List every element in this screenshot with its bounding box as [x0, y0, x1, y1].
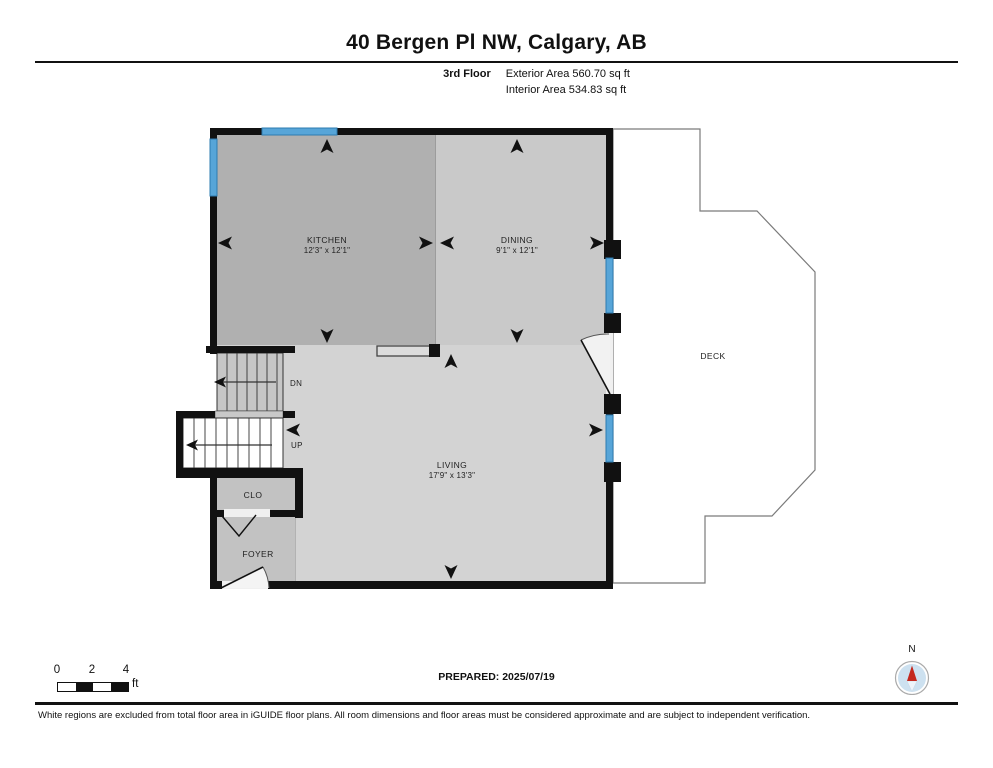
wall-jamb-1: [604, 240, 621, 259]
wall-left-lower: [210, 476, 217, 589]
living-label: LIVING: [437, 460, 467, 470]
deck-label: DECK: [700, 351, 725, 361]
footer-divider: [35, 702, 958, 705]
compass-icon: N: [885, 639, 939, 695]
scale-bar: [57, 682, 129, 692]
foyer-label: FOYER: [242, 549, 273, 559]
stairs-down-label: DN: [290, 379, 302, 388]
window-top: [262, 128, 337, 135]
kitchen-label: KITCHEN: [307, 235, 347, 245]
disclaimer-text: White regions are excluded from total fl…: [38, 710, 810, 721]
wall-jamb-4: [604, 462, 621, 482]
scale-seg-1: [58, 683, 76, 691]
stairs-up-box: [183, 418, 283, 468]
living-dimensions: 17'9" x 13'3": [429, 471, 475, 480]
wall-closet-top: [176, 468, 303, 478]
scale-seg-3: [93, 683, 111, 691]
window-left: [210, 139, 217, 196]
stairs-down: [214, 353, 283, 418]
closet-label: CLO: [244, 490, 263, 500]
railing-post: [429, 344, 440, 357]
wall-stairs-mid-cap: [283, 411, 295, 418]
floor-plan: KITCHEN 12'3" x 12'1" DINING 9'1" x 12'1…: [0, 0, 993, 768]
stair-landing: [215, 411, 283, 418]
scale-seg-4: [111, 683, 129, 691]
wall-bottom: [210, 581, 613, 589]
railing: [377, 344, 440, 357]
wall-jamb-3: [604, 394, 621, 414]
prepared-date: PREPARED: 2025/07/19: [0, 671, 993, 683]
floor-plan-page: 40 Bergen Pl NW, Calgary, AB 3rd Floor E…: [0, 0, 993, 768]
dining-label: DINING: [501, 235, 533, 245]
stairs-up: [183, 418, 283, 468]
stairs-up-label: UP: [291, 441, 303, 450]
wall-stairs-top: [206, 346, 295, 353]
kitchen-dimensions: 12'3" x 12'1": [304, 246, 350, 255]
window-right-dining: [606, 258, 613, 313]
dining-dimensions: 9'1" x 12'1": [496, 246, 538, 255]
closet-opening: [224, 509, 270, 517]
wall-jamb-2: [604, 313, 621, 333]
compass-north-label: N: [908, 644, 915, 655]
wall-closet-bottom-right: [270, 510, 303, 517]
window-right-living: [606, 415, 613, 462]
wall-stairs-left: [176, 411, 183, 476]
scale-seg-2: [76, 683, 94, 691]
